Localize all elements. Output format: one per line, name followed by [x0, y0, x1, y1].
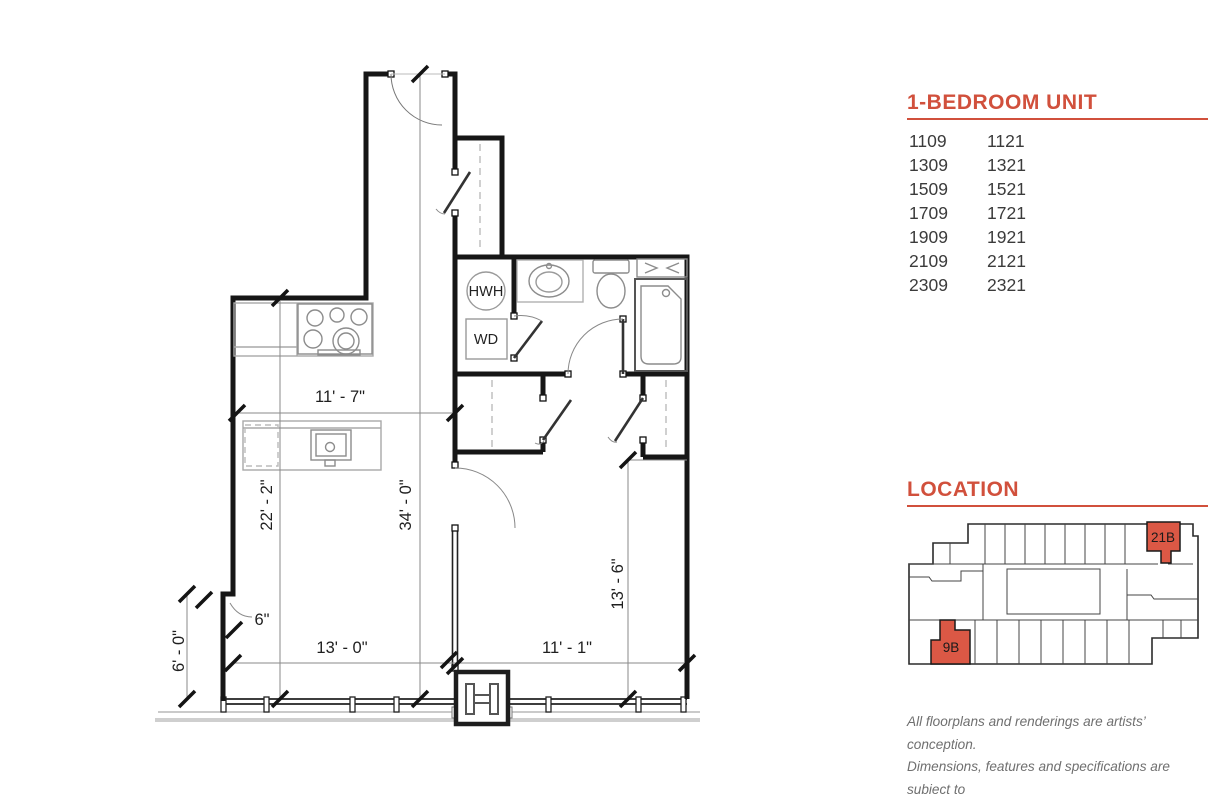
- disclaimer-line: Dimensions, features and specifications …: [907, 759, 1170, 794]
- unit-number: 1121: [987, 129, 1026, 153]
- unit-number: 2309: [909, 273, 987, 297]
- unit-number: 2109: [909, 249, 987, 273]
- unit-number: 1509: [909, 177, 987, 201]
- column: [452, 672, 512, 724]
- unit-number: 1909: [909, 225, 987, 249]
- unit-number: 1321: [987, 153, 1026, 177]
- entry-door-arc: [391, 74, 442, 125]
- kitchen-fixtures: [234, 303, 381, 470]
- unit-number: 1309: [909, 153, 987, 177]
- dimension-labels: 11' - 7" 13' - 0" 11' - 1" 22' - 2" 34' …: [170, 388, 627, 672]
- vanity-sink: [517, 260, 583, 302]
- unit-number: 1721: [987, 201, 1026, 225]
- wd-label: WD: [474, 332, 498, 348]
- unit-number: 1109: [909, 129, 987, 153]
- bathroom-fixtures: [517, 259, 687, 371]
- dim-overall-height-label: 34' - 0": [397, 479, 415, 530]
- unit-number: 2321: [987, 273, 1026, 297]
- unit-number: 1521: [987, 177, 1026, 201]
- disclaimer-line: All floorplans and renderings are artist…: [907, 714, 1145, 752]
- section-divider: [907, 118, 1208, 120]
- kitchen-island: [243, 421, 381, 470]
- dim-top-width-label: 11' - 7": [315, 388, 365, 406]
- highlighted-unit-labels: 21B 9B: [943, 530, 1175, 655]
- unit-9b-label: 9B: [943, 640, 960, 655]
- unit-21b-label: 21B: [1151, 530, 1175, 545]
- dim-living-width-label: 13' - 0": [316, 639, 367, 657]
- cooktop: [298, 304, 372, 355]
- bathtub: [635, 279, 687, 371]
- dim-jog-label: 6": [254, 611, 269, 629]
- floorplan-sheet: 11' - 7" 13' - 0" 11' - 1" 22' - 2" 34' …: [0, 0, 1228, 794]
- hwh-label: HWH: [469, 284, 504, 300]
- fixture-labels: HWH WD: [469, 284, 504, 348]
- toilet: [593, 260, 629, 308]
- section-divider: [907, 505, 1208, 507]
- unit-panel-title: 1-BEDROOM UNIT: [907, 91, 1208, 115]
- island-sink: [311, 430, 351, 466]
- unit-number: 2121: [987, 249, 1026, 273]
- grade-lines: [155, 712, 700, 720]
- door-jambs: [388, 71, 646, 671]
- disclaimer-text: All floorplans and renderings are artist…: [907, 711, 1209, 794]
- location-key-plan: 21B 9B: [905, 513, 1210, 681]
- floorplan-drawing: 11' - 7" 13' - 0" 11' - 1" 22' - 2" 34' …: [0, 0, 760, 794]
- shelf: [637, 259, 687, 277]
- unit-number-list: 1109 1121 1309 1321 1509 1521 1709 1721 …: [909, 129, 1026, 297]
- unit-number: 1709: [909, 201, 987, 225]
- dim-lower-left-height-label: 6' - 0": [170, 630, 188, 672]
- thin-wall: [453, 528, 458, 668]
- dim-bedroom-height-label: 13' - 6": [609, 558, 627, 609]
- location-panel-title: LOCATION: [907, 478, 1208, 502]
- unit-number: 1921: [987, 225, 1026, 249]
- dim-living-height-label: 22' - 2": [258, 479, 276, 530]
- dim-bedroom-width-label: 11' - 1": [542, 639, 592, 657]
